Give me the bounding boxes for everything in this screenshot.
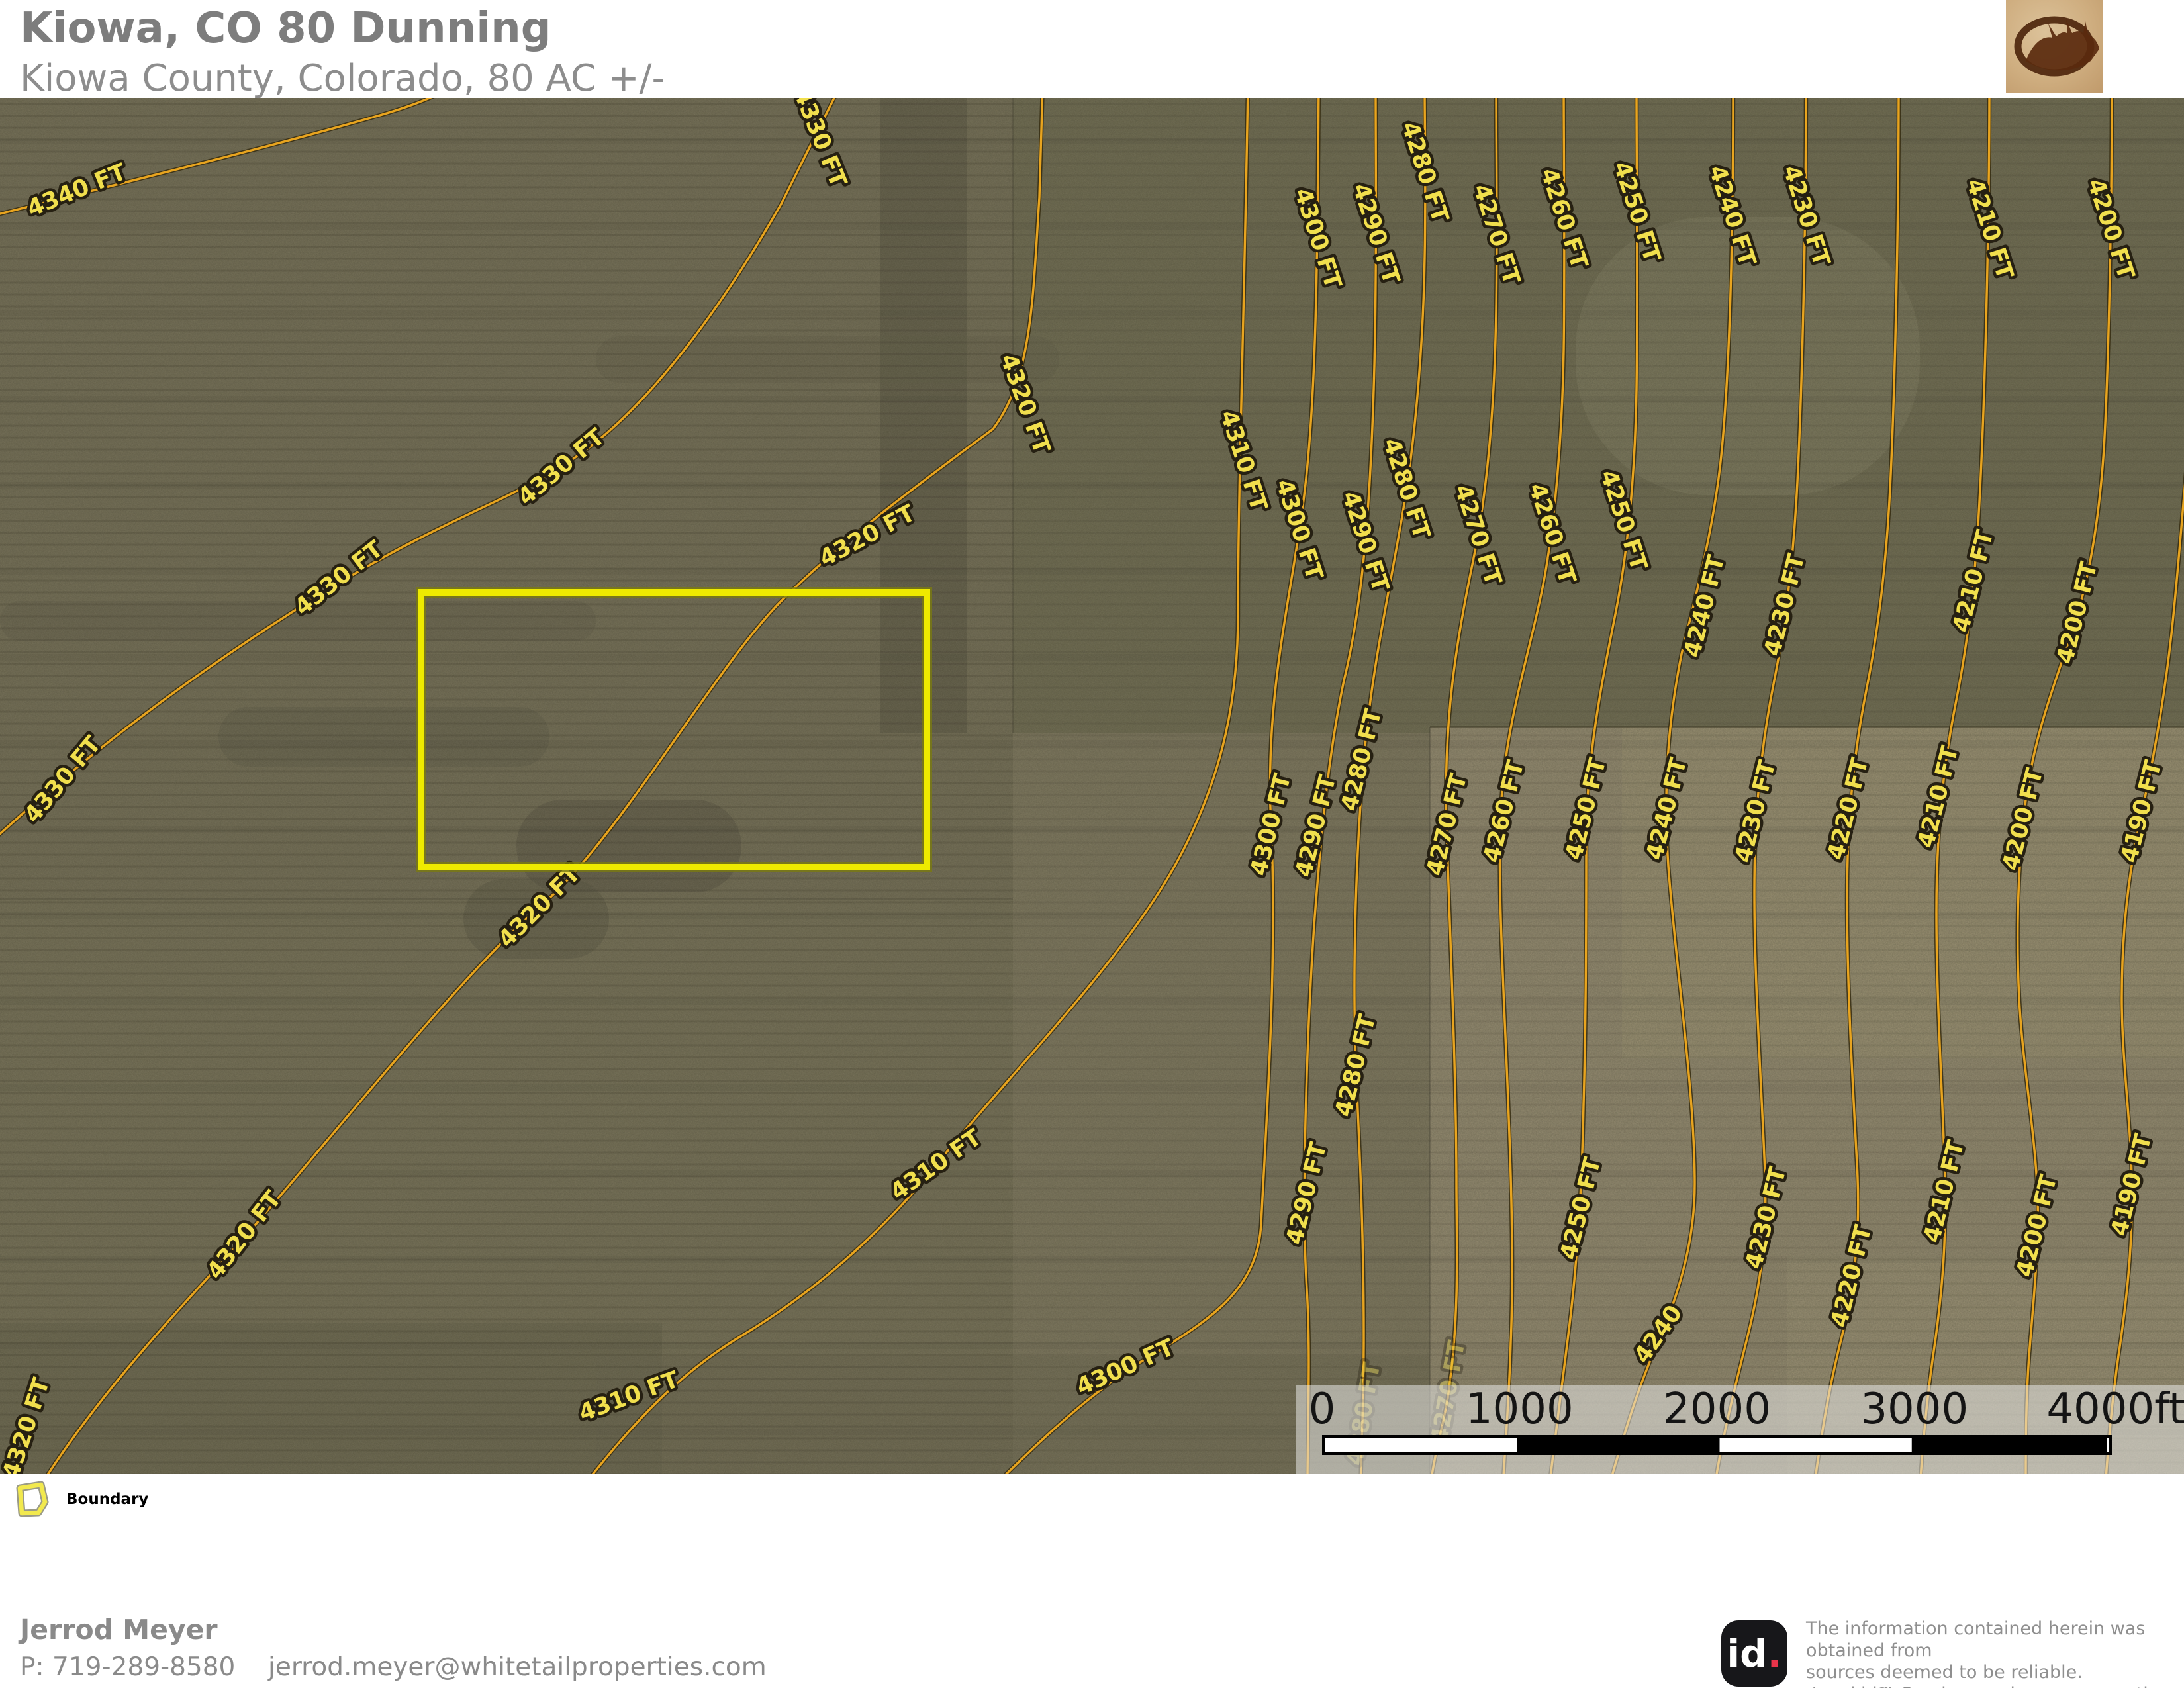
scalebar-segment [1325, 1438, 1517, 1452]
scalebar-segment [1720, 1438, 1912, 1452]
scalebar-tick-label: 0 [1309, 1385, 1336, 1434]
land-id-logo: id. [1721, 1620, 1787, 1687]
boundary-legend-icon [15, 1481, 49, 1520]
aerial-contour-map: 4340 FT4330 FT4330 FT4330 FT4330 FT4320 … [0, 98, 2184, 1474]
scalebar-tick-label: 2000 [1663, 1385, 1771, 1434]
land-id-logo-text: id [1727, 1634, 1767, 1673]
land-id-logo-dot: . [1768, 1634, 1782, 1673]
disclaimer-line: Land id™ Services makes no warranties or… [1806, 1683, 2184, 1688]
scalebar-layer: 01000200030004000ft [1296, 1385, 2184, 1474]
map-canvas: 4340 FT4330 FT4330 FT4330 FT4330 FT4320 … [0, 98, 2184, 1474]
map-report-page: Kiowa, CO 80 Dunning Kiowa County, Color… [0, 0, 2184, 1688]
disclaimer-text: The information contained herein was obt… [1806, 1618, 2184, 1688]
agent-email: jerrod.meyer@whitetailproperties.com [268, 1652, 767, 1682]
scalebar-tick-label: 3000 [1860, 1385, 1968, 1434]
whitetail-properties-antler-logo [2006, 0, 2103, 93]
disclaimer-line: The information contained herein was obt… [1806, 1618, 2184, 1662]
scalebar-tick-label: 4000ft [2046, 1385, 2184, 1434]
boundary-legend-label: Boundary [66, 1491, 148, 1508]
scalebar-end-tick [2107, 1438, 2109, 1452]
antler-icon [2006, 0, 2103, 93]
page-title: Kiowa, CO 80 Dunning [20, 4, 551, 53]
scalebar-tick-label: 1000 [1466, 1385, 1574, 1434]
agent-name: Jerrod Meyer [20, 1614, 218, 1646]
page-subtitle: Kiowa County, Colorado, 80 AC +/- [20, 57, 665, 100]
agent-phone: P: 719-289-8580 [20, 1652, 235, 1682]
disclaimer-line: sources deemed to be reliable. [1806, 1662, 2184, 1683]
